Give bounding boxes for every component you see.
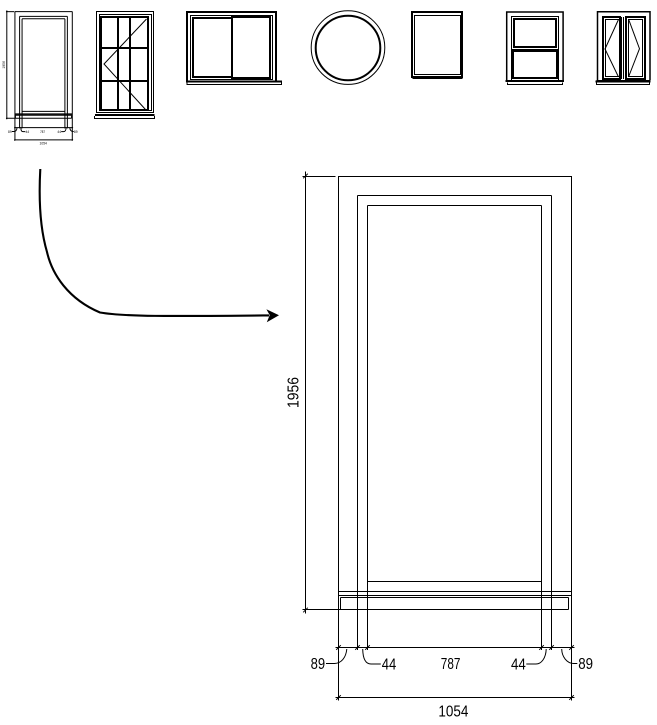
- svg-text:1054: 1054: [438, 704, 468, 721]
- svg-text:44: 44: [382, 657, 397, 674]
- svg-text:1956: 1956: [286, 377, 303, 408]
- svg-text:89: 89: [578, 656, 593, 673]
- svg-text:89: 89: [311, 656, 326, 673]
- svg-text:787: 787: [441, 656, 461, 673]
- svg-text:44: 44: [511, 657, 526, 674]
